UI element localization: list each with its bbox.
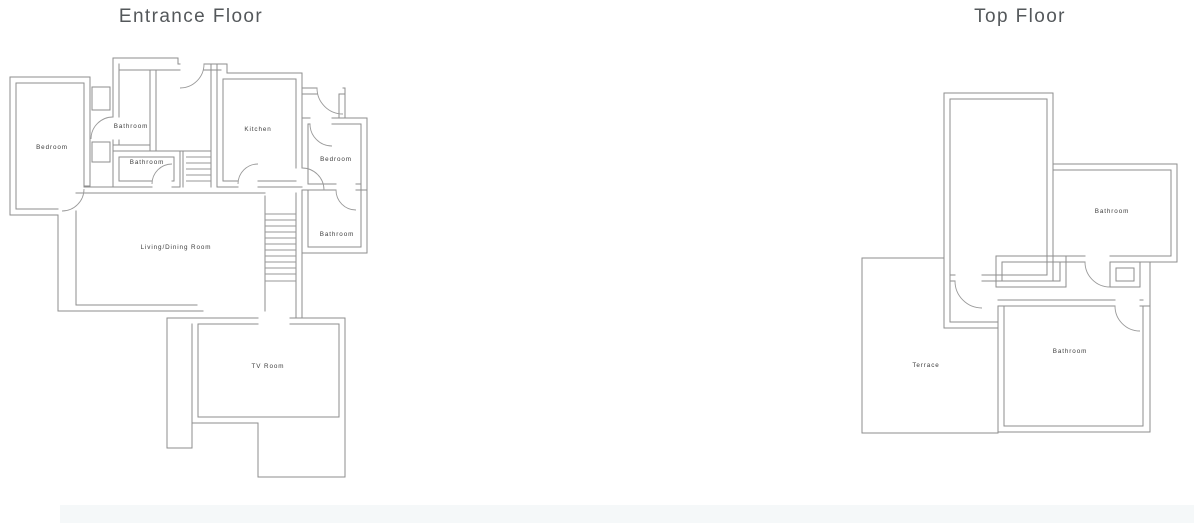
- entrance-floor-door-arcs: [62, 64, 356, 211]
- room-label-kitchen: Kitchen: [244, 126, 271, 133]
- room-label-terrace: Terrace: [912, 362, 939, 369]
- top-floor-plan: BathroomTerraceBathroom Top Floor: [862, 6, 1177, 433]
- entrance-floor-title: Entrance Floor: [119, 6, 263, 27]
- room-label-bathroom: Bathroom: [320, 231, 355, 238]
- staircase-upper-treads: [186, 157, 211, 181]
- floor-plan-page: BedroomBathroomBathroomKitchenBedroomBat…: [0, 0, 1194, 523]
- footer-bar: [60, 505, 1194, 523]
- room-label-bathroom: Bathroom: [1095, 208, 1130, 215]
- top-floor-room-labels: BathroomTerraceBathroom: [912, 208, 1129, 369]
- top-floor-walls: [862, 93, 1177, 433]
- floor-plans-canvas: BedroomBathroomBathroomKitchenBedroomBat…: [0, 0, 1194, 523]
- staircase-lower-treads: [265, 214, 296, 281]
- room-label-bedroom: Bedroom: [36, 144, 68, 151]
- entrance-floor-plan: BedroomBathroomBathroomKitchenBedroomBat…: [10, 6, 367, 477]
- room-label-bedroom: Bedroom: [320, 156, 352, 163]
- room-label-bathroom: Bathroom: [114, 123, 149, 130]
- entrance-floor-walls: [10, 58, 367, 477]
- room-label-tv-room: TV Room: [252, 363, 285, 370]
- room-label-bathroom: Bathroom: [130, 159, 165, 166]
- room-label-living-dining-room: Living/Dining Room: [141, 244, 212, 251]
- top-floor-title: Top Floor: [974, 6, 1066, 27]
- room-label-bathroom: Bathroom: [1053, 348, 1088, 355]
